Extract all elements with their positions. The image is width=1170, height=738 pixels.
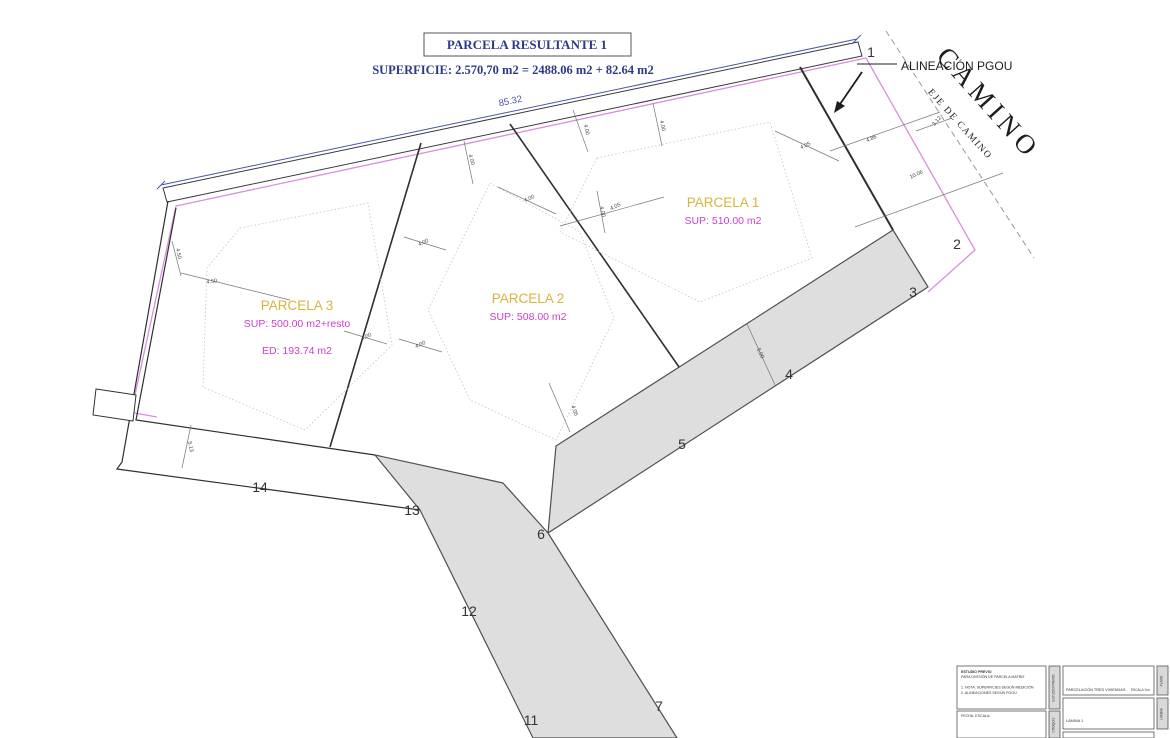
parcel-title-2: PARCELA 2 xyxy=(492,291,565,306)
road-upper-branch xyxy=(548,230,928,533)
title-block-strip-label: CROQUIS xyxy=(1052,718,1056,733)
title-block-sheet: LÁMINA 1 xyxy=(1066,719,1083,723)
dimension-label: 4.00 xyxy=(598,206,606,218)
title-block-line: PARA DIVISIÓN DE PARCELA MATRIZ xyxy=(961,674,1025,679)
parcel-title-1: PARCELA 1 xyxy=(687,195,760,210)
dimension-label: 5.13 xyxy=(186,441,194,453)
title-block-line: FECHA: ESCALA: xyxy=(961,714,990,718)
vertex-label-12: 12 xyxy=(461,603,477,619)
dimension-label: 4.00 xyxy=(582,124,590,136)
parcel-sup-3: ED: 193.74 m2 xyxy=(262,345,332,357)
parcel-sup-3: SUP: 500.00 m2+resto xyxy=(244,318,351,330)
road-lower-branch xyxy=(375,455,677,738)
parcel-title-3: PARCELA 3 xyxy=(261,298,334,313)
vertex-label-7: 7 xyxy=(655,698,663,714)
alineacion-arrow xyxy=(834,64,897,113)
parcel-labels: PARCELA 1SUP: 510.00 m2PARCELA 2SUP: 508… xyxy=(244,195,762,357)
title-block-strip-label: PLANO xyxy=(1160,675,1164,686)
vertex-label-5: 5 xyxy=(678,436,686,452)
title-block-strip-label: ESTUDIO PREVIO xyxy=(1052,674,1056,702)
drawing-title: PARCELA RESULTANTE 1 xyxy=(447,37,607,52)
title-block-project: PARCELACIÓN TRES VIVIENDAS xyxy=(1066,687,1126,692)
title-block-line: 1. NOTA: SUPERFICIES SEGÚN MEDICIÓN xyxy=(961,685,1034,690)
superficie-text: SUPERFICIE: 2.570,70 m2 = 2488.06 m2 + 8… xyxy=(372,63,654,77)
title-block-scale: ESCALA 1/m xyxy=(1131,688,1150,692)
vertex-label-13: 13 xyxy=(404,502,420,518)
dimension-label: 4.50 xyxy=(206,278,217,285)
dimension-label: 3.12 xyxy=(931,115,942,127)
vertex-label-11: 11 xyxy=(524,712,539,728)
dimension-label: 4.00 xyxy=(467,154,476,166)
vertex-label-4: 4 xyxy=(785,366,793,382)
vertex-label-6: 6 xyxy=(537,526,545,542)
parcel-plan-page: PARCELA RESULTANTE 1 SUPERFICIE: 2.570,7… xyxy=(0,0,1170,738)
parcel-sup-1: SUP: 510.00 m2 xyxy=(684,215,761,227)
dimension-label: 10.06 xyxy=(909,169,924,180)
dimension-label: 4.50 xyxy=(174,248,182,260)
top-dimension-line xyxy=(157,35,861,189)
vertex-label-2: 2 xyxy=(953,236,961,252)
dimension-label: 4.05 xyxy=(569,405,578,417)
dimension-label: 4.00 xyxy=(414,340,426,350)
vertex-label-3: 3 xyxy=(909,284,917,300)
dimension-label: 4.05 xyxy=(799,141,811,151)
vertex-label-14: 14 xyxy=(252,479,268,495)
dimension-label: 85.32 xyxy=(498,94,524,110)
dimension-label: 4.00 xyxy=(360,332,372,342)
parcel-plan-drawing: PARCELA RESULTANTE 1 SUPERFICIE: 2.570,7… xyxy=(0,0,1170,738)
title-block-line: 2. ALINEACIONES SEGÚN PGOU xyxy=(961,690,1017,695)
title-block-strip-label: LÁMINA xyxy=(1160,707,1164,720)
parcel-outer-boundary xyxy=(117,67,893,510)
parcel-dividers xyxy=(330,124,679,447)
parcel-sup-2: SUP: 508.00 m2 xyxy=(489,311,566,323)
dimension-label: 4.86 xyxy=(865,134,877,144)
boundary-stub xyxy=(93,389,136,421)
dimension-label: 4.00 xyxy=(523,194,535,204)
dimension-label: 4.00 xyxy=(417,238,429,248)
dimension-label: 4.00 xyxy=(658,120,666,132)
title-block-line: ESTUDIO PREVIO xyxy=(961,670,992,674)
vertex-label-1: 1 xyxy=(867,44,875,60)
